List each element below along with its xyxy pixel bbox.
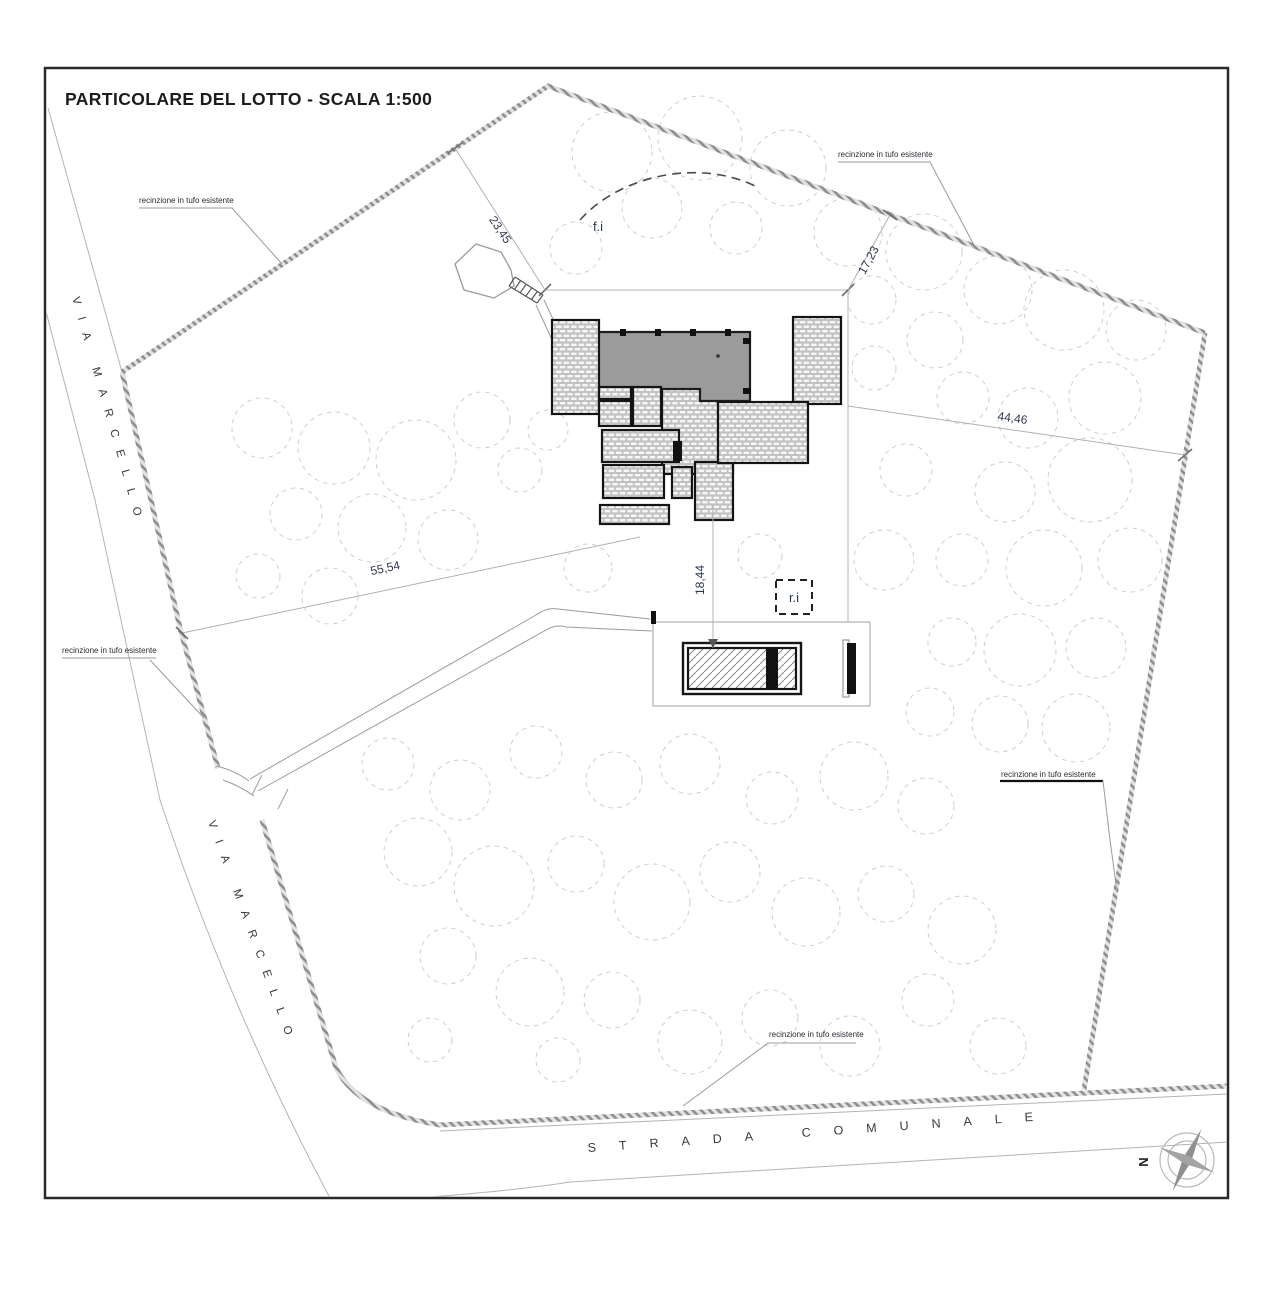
fence-label-mid-left: recinzione in tufo esistente: [62, 646, 157, 655]
roof-dot: [716, 354, 720, 358]
building-room-c: [633, 387, 661, 426]
plan-title: PARTICOLARE DEL LOTTO - SCALA 1:500: [65, 89, 432, 109]
building-wing-left-tall: [552, 320, 599, 414]
pool-deck-tick: [651, 611, 656, 624]
building-room-low-left: [603, 465, 664, 498]
site-plan-svg: recinzione in tufo esistente recinzione …: [0, 0, 1284, 1304]
building-wing-center-low: [695, 462, 733, 520]
building-wing-right-top: [793, 317, 841, 404]
roof-tick-3: [690, 329, 696, 336]
site-plan-page: recinzione in tufo esistente recinzione …: [0, 0, 1284, 1304]
roof-tick-1: [620, 329, 626, 336]
north-letter: N: [1136, 1157, 1151, 1166]
fence-label-top-left: recinzione in tufo esistente: [139, 196, 234, 205]
building-room-a: [599, 387, 631, 399]
roof-tick-5: [743, 338, 751, 344]
building-notch: [673, 441, 682, 461]
building-strip-bottom: [600, 505, 669, 524]
pool-divider: [766, 648, 778, 689]
building-room-b: [599, 401, 631, 426]
ri-marker: r.i: [789, 590, 799, 605]
roof-tick-4: [725, 329, 731, 336]
drawing-frame: [45, 68, 1228, 1198]
building-wing-right-big: [718, 402, 808, 463]
dim-label-pool: 18,44: [693, 565, 707, 595]
pool-basin: [688, 648, 796, 689]
building-room-low-small: [672, 467, 692, 498]
pool-side-wall: [847, 643, 856, 694]
roof-tick-6: [743, 388, 751, 394]
fence-label-bottom: recinzione in tufo esistente: [769, 1030, 864, 1039]
fi-marker: f.i: [593, 219, 603, 234]
roof-tick-2: [655, 329, 661, 336]
fence-label-top-right: recinzione in tufo esistente: [838, 150, 933, 159]
building-room-mid: [602, 430, 679, 462]
fence-label-right: recinzione in tufo esistente: [1001, 770, 1096, 779]
